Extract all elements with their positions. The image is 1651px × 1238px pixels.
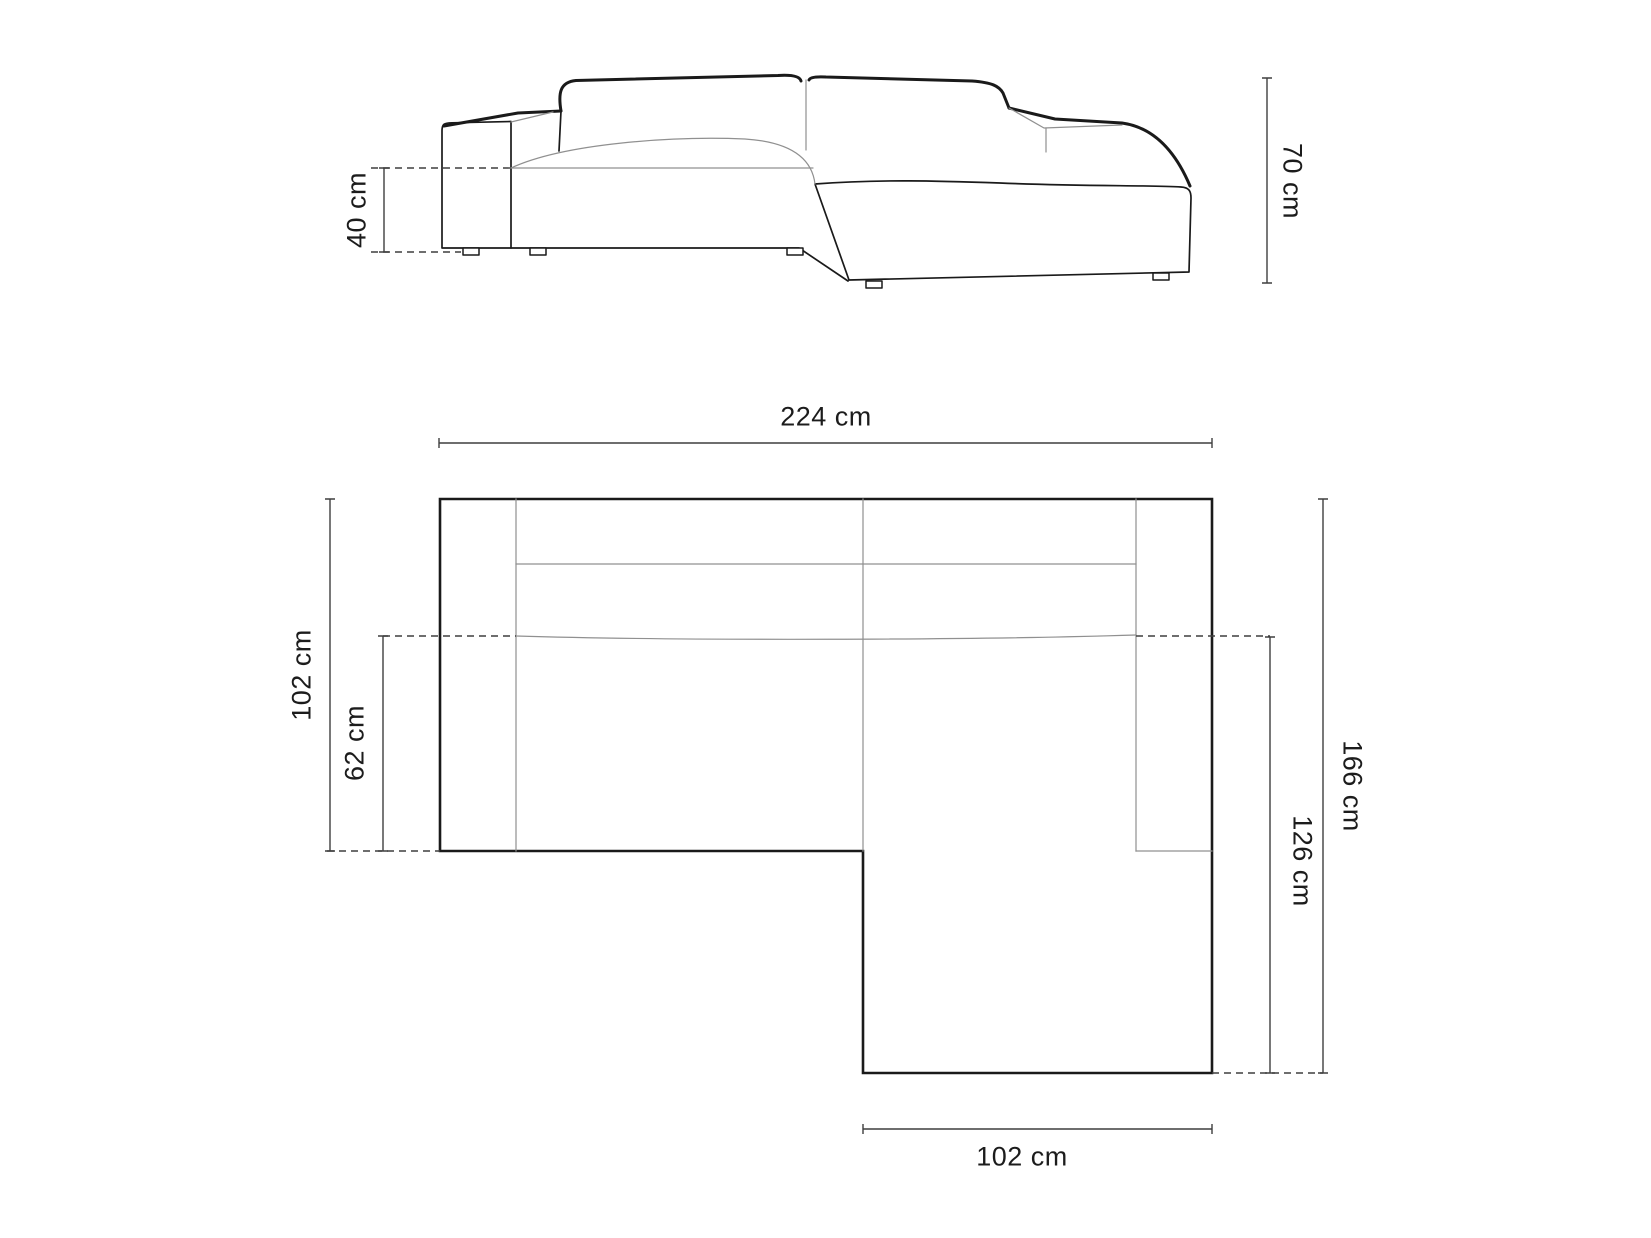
elevation-silhouette [444, 75, 1190, 186]
dim-line-left-depth [325, 499, 335, 851]
dim-label-left-seat-depth: 62 cm [342, 705, 369, 781]
left-armrest-front-face [442, 122, 511, 249]
extension-lines [327, 168, 1323, 1073]
dim-label-overall-width: 224 cm [780, 404, 872, 431]
back-cushion-right-top-edge [809, 77, 1009, 108]
dim-label-right-overall-depth: 166 cm [1339, 740, 1366, 832]
sofa-feet [463, 248, 1169, 288]
back-cushion-left-top-edge [560, 75, 801, 111]
sofa-foot [530, 248, 546, 255]
top-plan-view [440, 499, 1212, 1073]
elevation-outline [442, 111, 1191, 281]
sofa-foot [463, 248, 479, 255]
dim-line-right-overall-depth [1318, 499, 1328, 1073]
front-elevation-view [442, 75, 1191, 288]
dim-label-overall-height: 70 cm [1279, 143, 1306, 219]
dim-line-seat-height [379, 168, 389, 252]
dim-label-left-depth: 102 cm [289, 629, 316, 721]
plan-l-shape-outline [440, 499, 1212, 1073]
plan-seat-front-seam [516, 635, 1136, 639]
dim-line-left-seat-depth [378, 636, 388, 851]
dim-line-chaise-width [863, 1124, 1212, 1134]
right-armrest-top-edge [1009, 108, 1190, 186]
dim-label-chaise-depth: 126 cm [1289, 815, 1316, 907]
seat-cushion-curve [511, 138, 815, 184]
sofa-dimension-svg [0, 0, 1651, 1238]
elevation-seams [511, 80, 1122, 184]
sofa-foot [1153, 273, 1169, 280]
dim-line-overall-height [1262, 78, 1272, 283]
left-armrest-top-edge [444, 111, 561, 126]
dimension-drawing-canvas: 224 cm 102 cm 62 cm 166 cm 126 cm 102 cm… [0, 0, 1651, 1238]
sofa-foot [866, 281, 882, 288]
dim-label-chaise-width: 102 cm [976, 1144, 1068, 1171]
dim-label-seat-height: 40 cm [344, 172, 371, 248]
back-cushion-left-side-edge [559, 111, 561, 151]
plan-seams [516, 499, 1212, 851]
dimension-lines [325, 78, 1328, 1134]
dim-line-chaise-depth [1265, 637, 1275, 1073]
dim-line-overall-width [439, 438, 1212, 448]
chaise-body [815, 181, 1191, 280]
sofa-foot [787, 248, 803, 255]
plan-outline [440, 499, 1212, 1073]
